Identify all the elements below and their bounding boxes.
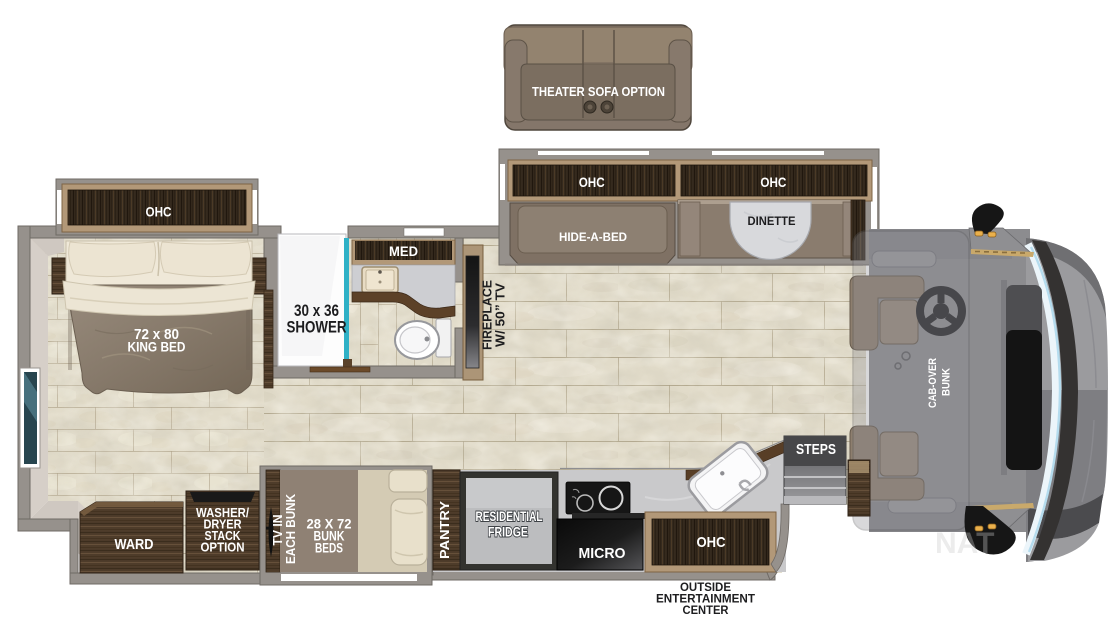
svg-text:KING BED: KING BED <box>128 339 186 355</box>
svg-text:DINETTE: DINETTE <box>748 214 796 228</box>
svg-text:RESIDENTIAL: RESIDENTIAL <box>476 508 543 524</box>
svg-text:OPTION: OPTION <box>201 540 245 555</box>
svg-text:CENTER: CENTER <box>683 603 729 617</box>
svg-text:CAB-OVER: CAB-OVER <box>927 358 939 408</box>
svg-text:FRIDGE: FRIDGE <box>488 524 528 540</box>
svg-text:SHOWER: SHOWER <box>287 319 347 337</box>
svg-text:HIDE-A-BED: HIDE-A-BED <box>559 232 627 244</box>
svg-text:OHC: OHC <box>697 534 726 551</box>
svg-text:PANTRY: PANTRY <box>437 501 452 559</box>
svg-text:FIREPLACE: FIREPLACE <box>481 280 495 350</box>
svg-text:NAT: NAT <box>935 527 994 560</box>
svg-text:W/ 50” TV: W/ 50” TV <box>494 282 508 347</box>
svg-text:EACH BUNK: EACH BUNK <box>283 493 298 564</box>
svg-text:OHC: OHC <box>760 174 786 190</box>
svg-text:30 x 36: 30 x 36 <box>294 302 339 320</box>
svg-text:BEDS: BEDS <box>315 540 343 556</box>
svg-text:STEPS: STEPS <box>796 442 836 458</box>
svg-text:THEATER SOFA OPTION: THEATER SOFA OPTION <box>532 84 665 99</box>
svg-text:WARD: WARD <box>115 537 154 553</box>
svg-text:OHC: OHC <box>579 174 605 190</box>
svg-text:MICRO: MICRO <box>579 546 626 562</box>
svg-text:MED: MED <box>389 243 418 259</box>
svg-text:OHC: OHC <box>146 204 172 220</box>
svg-text:BUNK: BUNK <box>941 368 953 396</box>
